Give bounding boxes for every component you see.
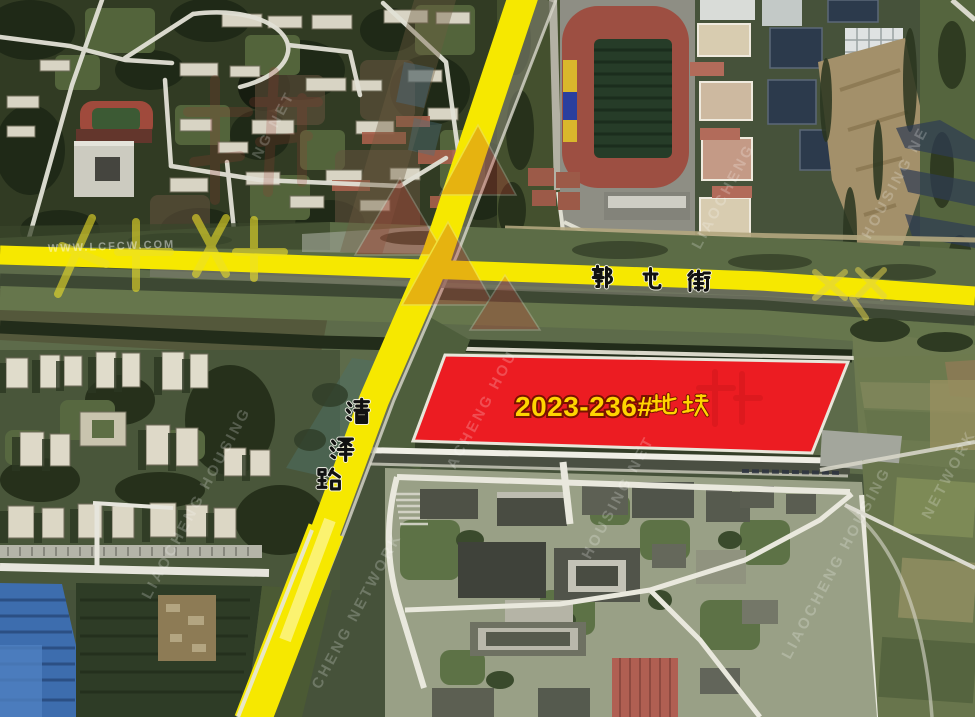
svg-text:2023-236#: 2023-236#	[515, 391, 653, 422]
